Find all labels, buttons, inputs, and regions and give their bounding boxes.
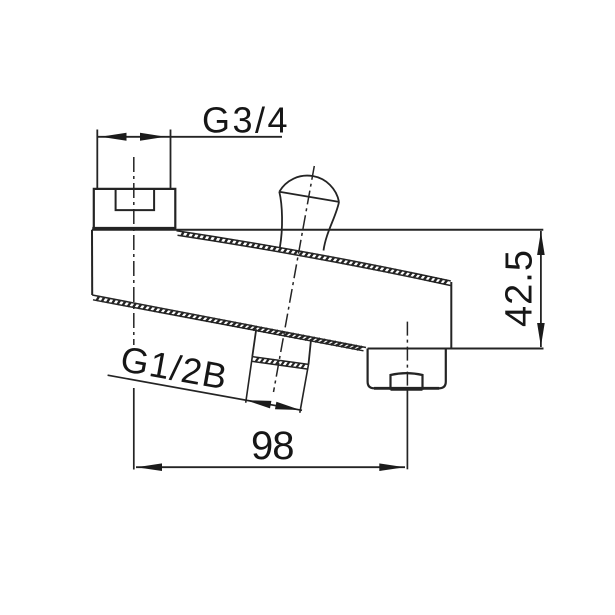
svg-text:G3/4: G3/4 xyxy=(202,99,290,140)
svg-text:98: 98 xyxy=(251,424,294,468)
svg-text:42.5: 42.5 xyxy=(499,249,541,327)
